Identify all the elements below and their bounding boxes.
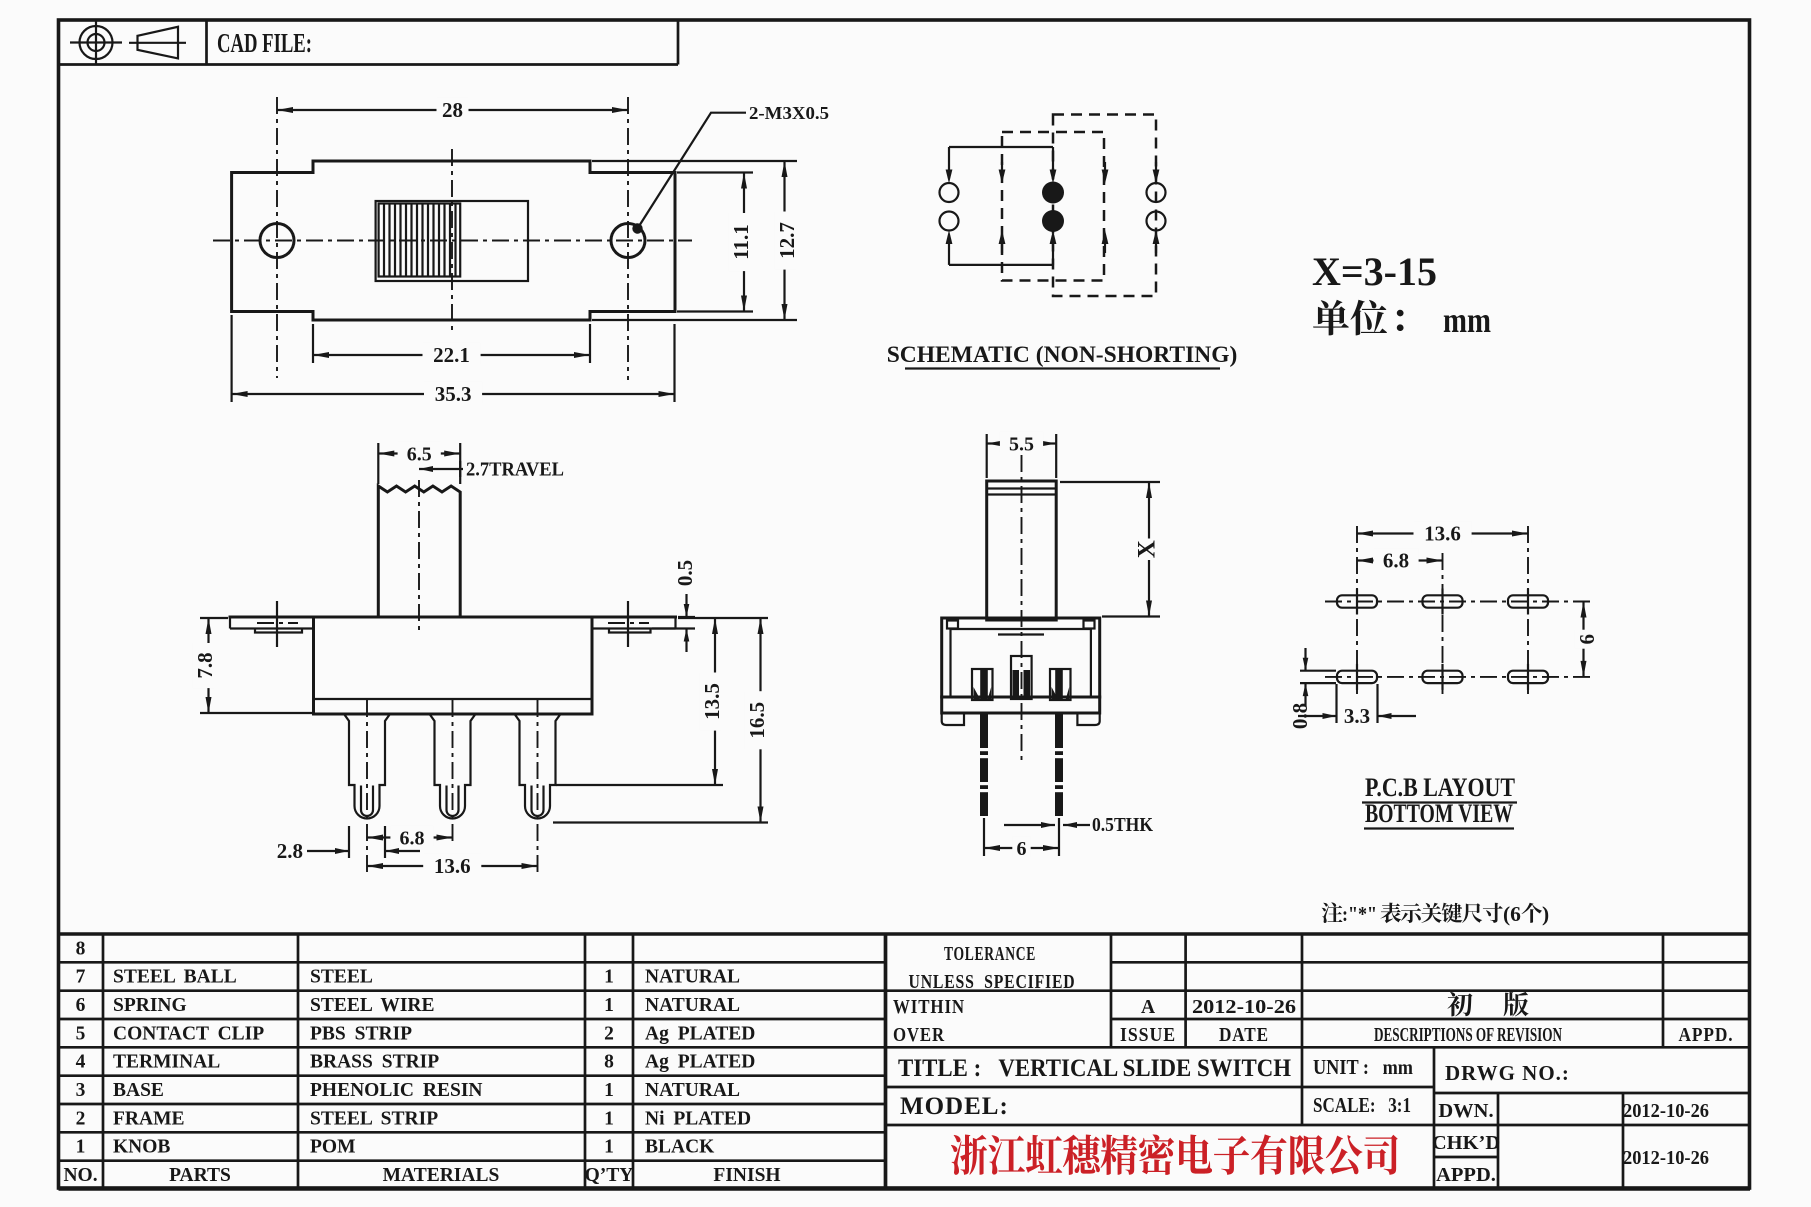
svg-text:6.8: 6.8 — [400, 827, 425, 849]
svg-text:2.8: 2.8 — [277, 839, 303, 863]
svg-text:Ni PLATED: Ni PLATED — [645, 1108, 751, 1129]
svg-text:13.5: 13.5 — [700, 683, 724, 720]
svg-text:FINISH: FINISH — [713, 1165, 780, 1186]
svg-text:APPD.: APPD. — [1436, 1164, 1496, 1186]
svg-text:STEEL BALL: STEEL BALL — [113, 967, 237, 988]
svg-text:UNLESS SPECIFIED: UNLESS SPECIFIED — [909, 972, 1076, 993]
svg-text:1: 1 — [76, 1137, 86, 1158]
svg-text:CHK’D: CHK’D — [1432, 1132, 1500, 1154]
svg-text:PARTS: PARTS — [169, 1165, 231, 1186]
svg-text:APPD.: APPD. — [1679, 1025, 1734, 1046]
svg-text:5.5: 5.5 — [1009, 433, 1034, 455]
svg-text:2012-10-26: 2012-10-26 — [1623, 1100, 1709, 1122]
svg-text:6: 6 — [76, 995, 86, 1016]
svg-text:Q’TY: Q’TY — [585, 1165, 634, 1186]
svg-text:STEEL: STEEL — [310, 967, 373, 988]
svg-text:TERMINAL: TERMINAL — [113, 1052, 220, 1073]
svg-text:mm: mm — [1443, 300, 1491, 340]
svg-text:A: A — [1141, 997, 1155, 1018]
svg-text:1: 1 — [604, 1108, 614, 1129]
svg-text:NATURAL: NATURAL — [645, 967, 740, 988]
svg-text:2.7TRAVEL: 2.7TRAVEL — [466, 460, 564, 481]
svg-text:12.7: 12.7 — [775, 222, 799, 259]
svg-text:4: 4 — [76, 1052, 86, 1073]
svg-text:2012-10-26: 2012-10-26 — [1623, 1147, 1709, 1169]
svg-text:0.5THK: 0.5THK — [1092, 814, 1153, 836]
svg-text:BOTTOM VIEW: BOTTOM VIEW — [1365, 799, 1513, 828]
svg-text:8: 8 — [76, 938, 86, 959]
svg-text:28: 28 — [442, 98, 463, 122]
svg-text:PHENOLIC RESIN: PHENOLIC RESIN — [310, 1080, 483, 1101]
svg-text:0.5: 0.5 — [673, 560, 697, 586]
svg-text:2012-10-26: 2012-10-26 — [1192, 997, 1296, 1018]
svg-text:1: 1 — [604, 995, 614, 1016]
svg-text:6.5: 6.5 — [407, 443, 432, 465]
svg-text:TITLE : VERTICAL SLIDE SWITC: TITLE : VERTICAL SLIDE SWITCH — [898, 1055, 1292, 1082]
svg-text:6.8: 6.8 — [1383, 549, 1409, 573]
svg-text:STEEL STRIP: STEEL STRIP — [310, 1108, 438, 1129]
svg-text:BASE: BASE — [113, 1080, 164, 1101]
svg-text:PBS STRIP: PBS STRIP — [310, 1023, 412, 1044]
svg-text:16.5: 16.5 — [745, 702, 769, 739]
svg-text:TOLERANCE: TOLERANCE — [944, 944, 1036, 965]
svg-text::"*": :"*" — [1342, 902, 1377, 926]
svg-text:): ) — [1542, 902, 1549, 926]
svg-text:ISSUE: ISSUE — [1120, 1025, 1176, 1046]
svg-text:FRAME: FRAME — [113, 1108, 185, 1129]
svg-text:11.1: 11.1 — [729, 224, 753, 260]
svg-text:7.8: 7.8 — [193, 652, 217, 678]
svg-text:MODEL:: MODEL: — [900, 1093, 1009, 1120]
svg-text:1: 1 — [604, 1137, 614, 1158]
svg-text:DRWG NO.:: DRWG NO.: — [1445, 1061, 1570, 1085]
svg-text:8: 8 — [604, 1052, 614, 1073]
svg-text:35.3: 35.3 — [435, 382, 472, 406]
svg-text:CAD FILE:: CAD FILE: — [217, 28, 312, 58]
svg-text:WITHIN: WITHIN — [893, 997, 965, 1018]
svg-text:DESCRIPTIONS OF REVISION: DESCRIPTIONS OF REVISION — [1374, 1025, 1562, 1046]
svg-text:(6: (6 — [1503, 902, 1521, 926]
svg-text:BRASS STRIP: BRASS STRIP — [310, 1052, 439, 1073]
svg-text:3.3: 3.3 — [1344, 704, 1370, 728]
svg-text:5: 5 — [76, 1023, 86, 1044]
svg-text:1: 1 — [604, 967, 614, 988]
svg-text:NATURAL: NATURAL — [645, 995, 740, 1016]
svg-text:SPRING: SPRING — [113, 995, 187, 1016]
svg-text:NO.: NO. — [63, 1165, 97, 1186]
svg-text:MATERIALS: MATERIALS — [383, 1165, 500, 1186]
svg-text:KNOB: KNOB — [113, 1137, 170, 1158]
svg-text:1: 1 — [604, 1080, 614, 1101]
svg-text:P.C.B LAYOUT: P.C.B LAYOUT — [1365, 773, 1515, 802]
svg-text:3: 3 — [76, 1080, 86, 1101]
svg-text:6: 6 — [1575, 634, 1599, 645]
svg-text:7: 7 — [76, 967, 86, 988]
svg-text:6: 6 — [1017, 838, 1027, 860]
svg-text:2: 2 — [604, 1023, 614, 1044]
svg-text:22.1: 22.1 — [433, 343, 470, 367]
svg-text:STEEL WIRE: STEEL WIRE — [310, 995, 435, 1016]
svg-text:13.6: 13.6 — [434, 854, 471, 878]
svg-text:OVER: OVER — [893, 1025, 945, 1046]
svg-text:2-M3X0.5: 2-M3X0.5 — [749, 103, 829, 123]
svg-text:Ag PLATED: Ag PLATED — [645, 1023, 755, 1044]
svg-text:UNIT : mm: UNIT : mm — [1313, 1055, 1413, 1079]
svg-text:13.6: 13.6 — [1424, 522, 1461, 546]
svg-text:SCHEMATIC (NON-SHORTING): SCHEMATIC (NON-SHORTING) — [887, 342, 1238, 368]
svg-text:SCALE: 3:1: SCALE: 3:1 — [1313, 1093, 1411, 1117]
svg-text:DWN.: DWN. — [1438, 1100, 1493, 1122]
svg-text:Ag PLATED: Ag PLATED — [645, 1052, 755, 1073]
svg-text:POM: POM — [310, 1137, 355, 1158]
svg-text:X=3-15: X=3-15 — [1312, 249, 1437, 294]
svg-text:2: 2 — [76, 1108, 86, 1129]
svg-text:NATURAL: NATURAL — [645, 1080, 740, 1101]
svg-text:CONTACT CLIP: CONTACT CLIP — [113, 1023, 264, 1044]
svg-text:BLACK: BLACK — [645, 1137, 715, 1158]
svg-text:X: X — [1134, 540, 1161, 558]
svg-text:DATE: DATE — [1219, 1025, 1269, 1046]
